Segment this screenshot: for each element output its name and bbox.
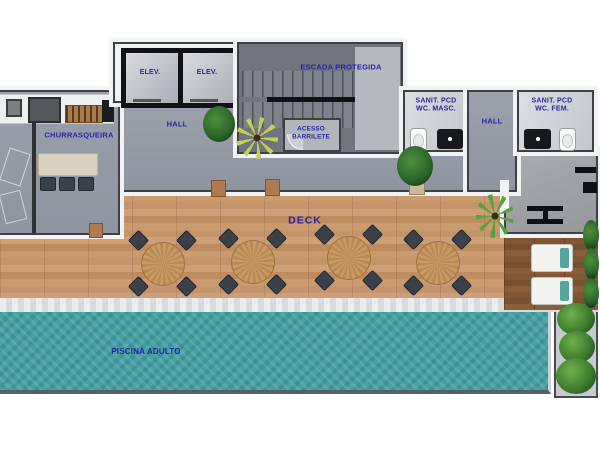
planter-plant — [556, 358, 596, 394]
staircase-label: ESCADA PROTEGIDA — [300, 63, 381, 72]
elevator-door — [190, 99, 218, 102]
floor-plan: PISCINA ADULTO HALL CHURRASQUEIRA — [0, 0, 600, 450]
potted-plant — [397, 146, 433, 186]
grill — [65, 105, 103, 123]
sun-lounger — [531, 277, 573, 305]
pool-label: PISCINA ADULTO — [111, 347, 180, 357]
barbecue-label: CHURRASQUEIRA — [44, 131, 113, 140]
wood-post — [211, 180, 226, 197]
edge-plant — [583, 278, 599, 308]
barbecue-table — [38, 153, 98, 176]
wc-hall-label: HALL — [482, 117, 503, 126]
deck-table — [416, 241, 460, 285]
partition-wall — [32, 123, 36, 233]
stool — [40, 177, 56, 191]
stool — [78, 177, 94, 191]
palm-plant — [236, 117, 278, 159]
sketched-furniture — [0, 147, 31, 186]
elevator-1-label: ELEV. — [140, 69, 161, 77]
sun-lounger — [531, 244, 573, 272]
wood-post — [89, 223, 103, 238]
sink-counter — [524, 129, 551, 149]
elevator-block — [113, 42, 237, 103]
lounger-pillow — [560, 281, 569, 301]
potted-plant — [203, 106, 235, 142]
sketched-furniture — [0, 190, 27, 224]
black-appliance — [102, 100, 114, 122]
stool — [59, 177, 75, 191]
wc-female-line2: WC. FEM. — [532, 106, 573, 114]
gym-equipment — [583, 182, 597, 193]
elevator-door — [133, 99, 161, 102]
sink-counter — [437, 129, 463, 149]
elevator-2-label: ELEV. — [197, 69, 218, 77]
wc-male-line2: WC. MASC. — [416, 106, 457, 114]
wc-female-line1: SANIT. PCD — [532, 98, 573, 106]
deck-table — [231, 240, 275, 284]
lounger-pillow — [560, 248, 569, 268]
stair-flight-upper — [242, 71, 354, 97]
barrilete-access-line2: BARRILETE — [292, 133, 330, 141]
edge-plant — [584, 248, 599, 280]
gym-equipment — [575, 167, 596, 173]
deck-table — [141, 242, 185, 286]
counter-sink — [6, 99, 22, 117]
wc-male-label: SANIT. PCD WC. MASC. — [416, 98, 457, 115]
deck-label: DECK — [288, 215, 322, 228]
elevator-hall-label: HALL — [167, 120, 188, 129]
gym-bench — [543, 206, 548, 224]
cooktop — [28, 97, 61, 123]
palm-plant — [476, 194, 514, 238]
wood-post — [265, 179, 280, 196]
barbecue-room — [0, 90, 120, 235]
wc-hall — [467, 90, 517, 192]
deck-table — [327, 236, 371, 280]
barrilete-access-line1: ACESSO — [292, 125, 330, 133]
barrilete-access-label: ACESSO BARRILETE — [292, 125, 330, 140]
wc-female-label: SANIT. PCD WC. FEM. — [532, 98, 573, 115]
toilet — [559, 128, 576, 151]
adult-pool — [0, 312, 551, 394]
wc-male-line1: SANIT. PCD — [416, 98, 457, 106]
edge-plant — [583, 220, 599, 250]
